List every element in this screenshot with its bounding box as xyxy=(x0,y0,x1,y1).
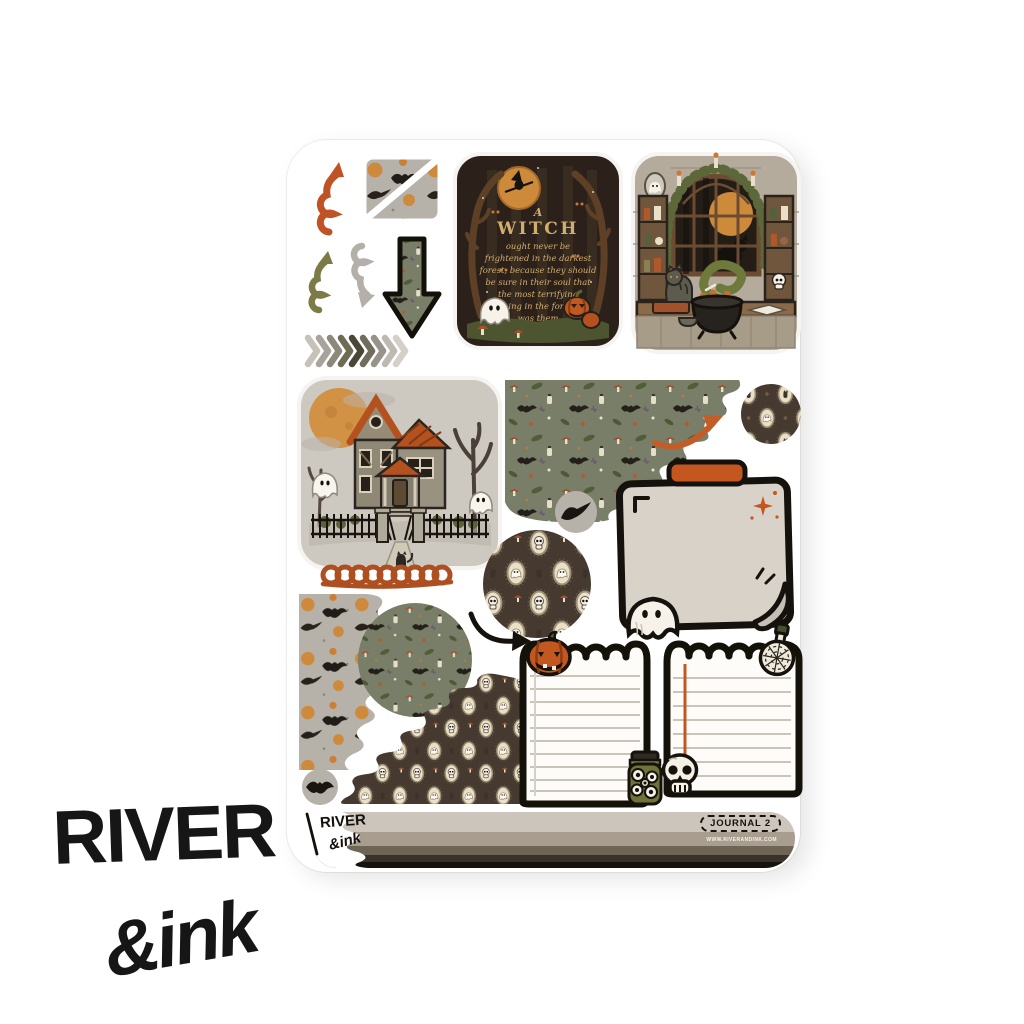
quote-line-witch: WITCH xyxy=(496,219,579,239)
clipboard-note-sticker xyxy=(607,450,803,650)
quote-line-a: A xyxy=(533,206,543,219)
footer-logo-line1: RIVER xyxy=(320,811,367,831)
footer-bar: JOURNAL 2 WWW.RIVERANDINK.COM xyxy=(313,812,795,868)
watermark-line2: &ink xyxy=(98,882,270,993)
ghost-icon xyxy=(313,473,338,498)
svg-text:be sure in their soul that: be sure in their soul that xyxy=(485,277,591,287)
swirl-arrow-olive-icon xyxy=(303,252,339,314)
brand-watermark: RIVER &ink xyxy=(14,764,324,1020)
mortar-icon xyxy=(679,318,697,326)
shelf-left xyxy=(639,196,667,300)
sheet-label-badge: JOURNAL 2 xyxy=(700,815,781,832)
product-photo: A WITCH ought never be frightened in the… xyxy=(0,0,1024,1024)
curved-arrow-orange-icon xyxy=(651,413,725,451)
svg-text:frightened in the darkest: frightened in the darkest xyxy=(484,253,592,263)
loop-divider-icon xyxy=(321,560,453,594)
swirl-arrow-gray-icon xyxy=(347,240,377,310)
sticker-sheet: A WITCH ought never be frightened in the… xyxy=(287,140,800,872)
svg-text:forest, because they should: forest, because they should xyxy=(479,265,597,275)
svg-text:ought never be: ought never be xyxy=(506,241,570,251)
ghost-icon xyxy=(470,492,492,514)
swirl-arrow-orange-icon xyxy=(311,160,351,238)
skull-icon xyxy=(659,752,703,802)
witch-quote-sticker: A WITCH ought never be frightened in the… xyxy=(453,152,623,350)
chevron-divider-icon xyxy=(305,336,409,366)
clip xyxy=(669,462,745,484)
corner-square-pattern-sticker xyxy=(363,156,441,222)
svg-text:the most terrifying: the most terrifying xyxy=(498,289,578,299)
haunted-house-sticker xyxy=(297,376,502,570)
website-url: WWW.RIVERANDINK.COM xyxy=(706,837,777,843)
witch-kitchen-sticker xyxy=(631,152,801,354)
jack-o-lantern-icon xyxy=(525,630,573,676)
footer-logo-line2: &ink xyxy=(327,829,363,854)
potion-icon xyxy=(757,622,801,682)
down-arrow-pattern-sticker xyxy=(381,234,443,342)
shelf-right xyxy=(765,196,793,300)
frames-circle-sticker-small xyxy=(739,382,803,446)
watermark-line1: RIVER xyxy=(51,788,277,881)
flower-box xyxy=(653,302,689,313)
skull-icon xyxy=(773,274,786,290)
